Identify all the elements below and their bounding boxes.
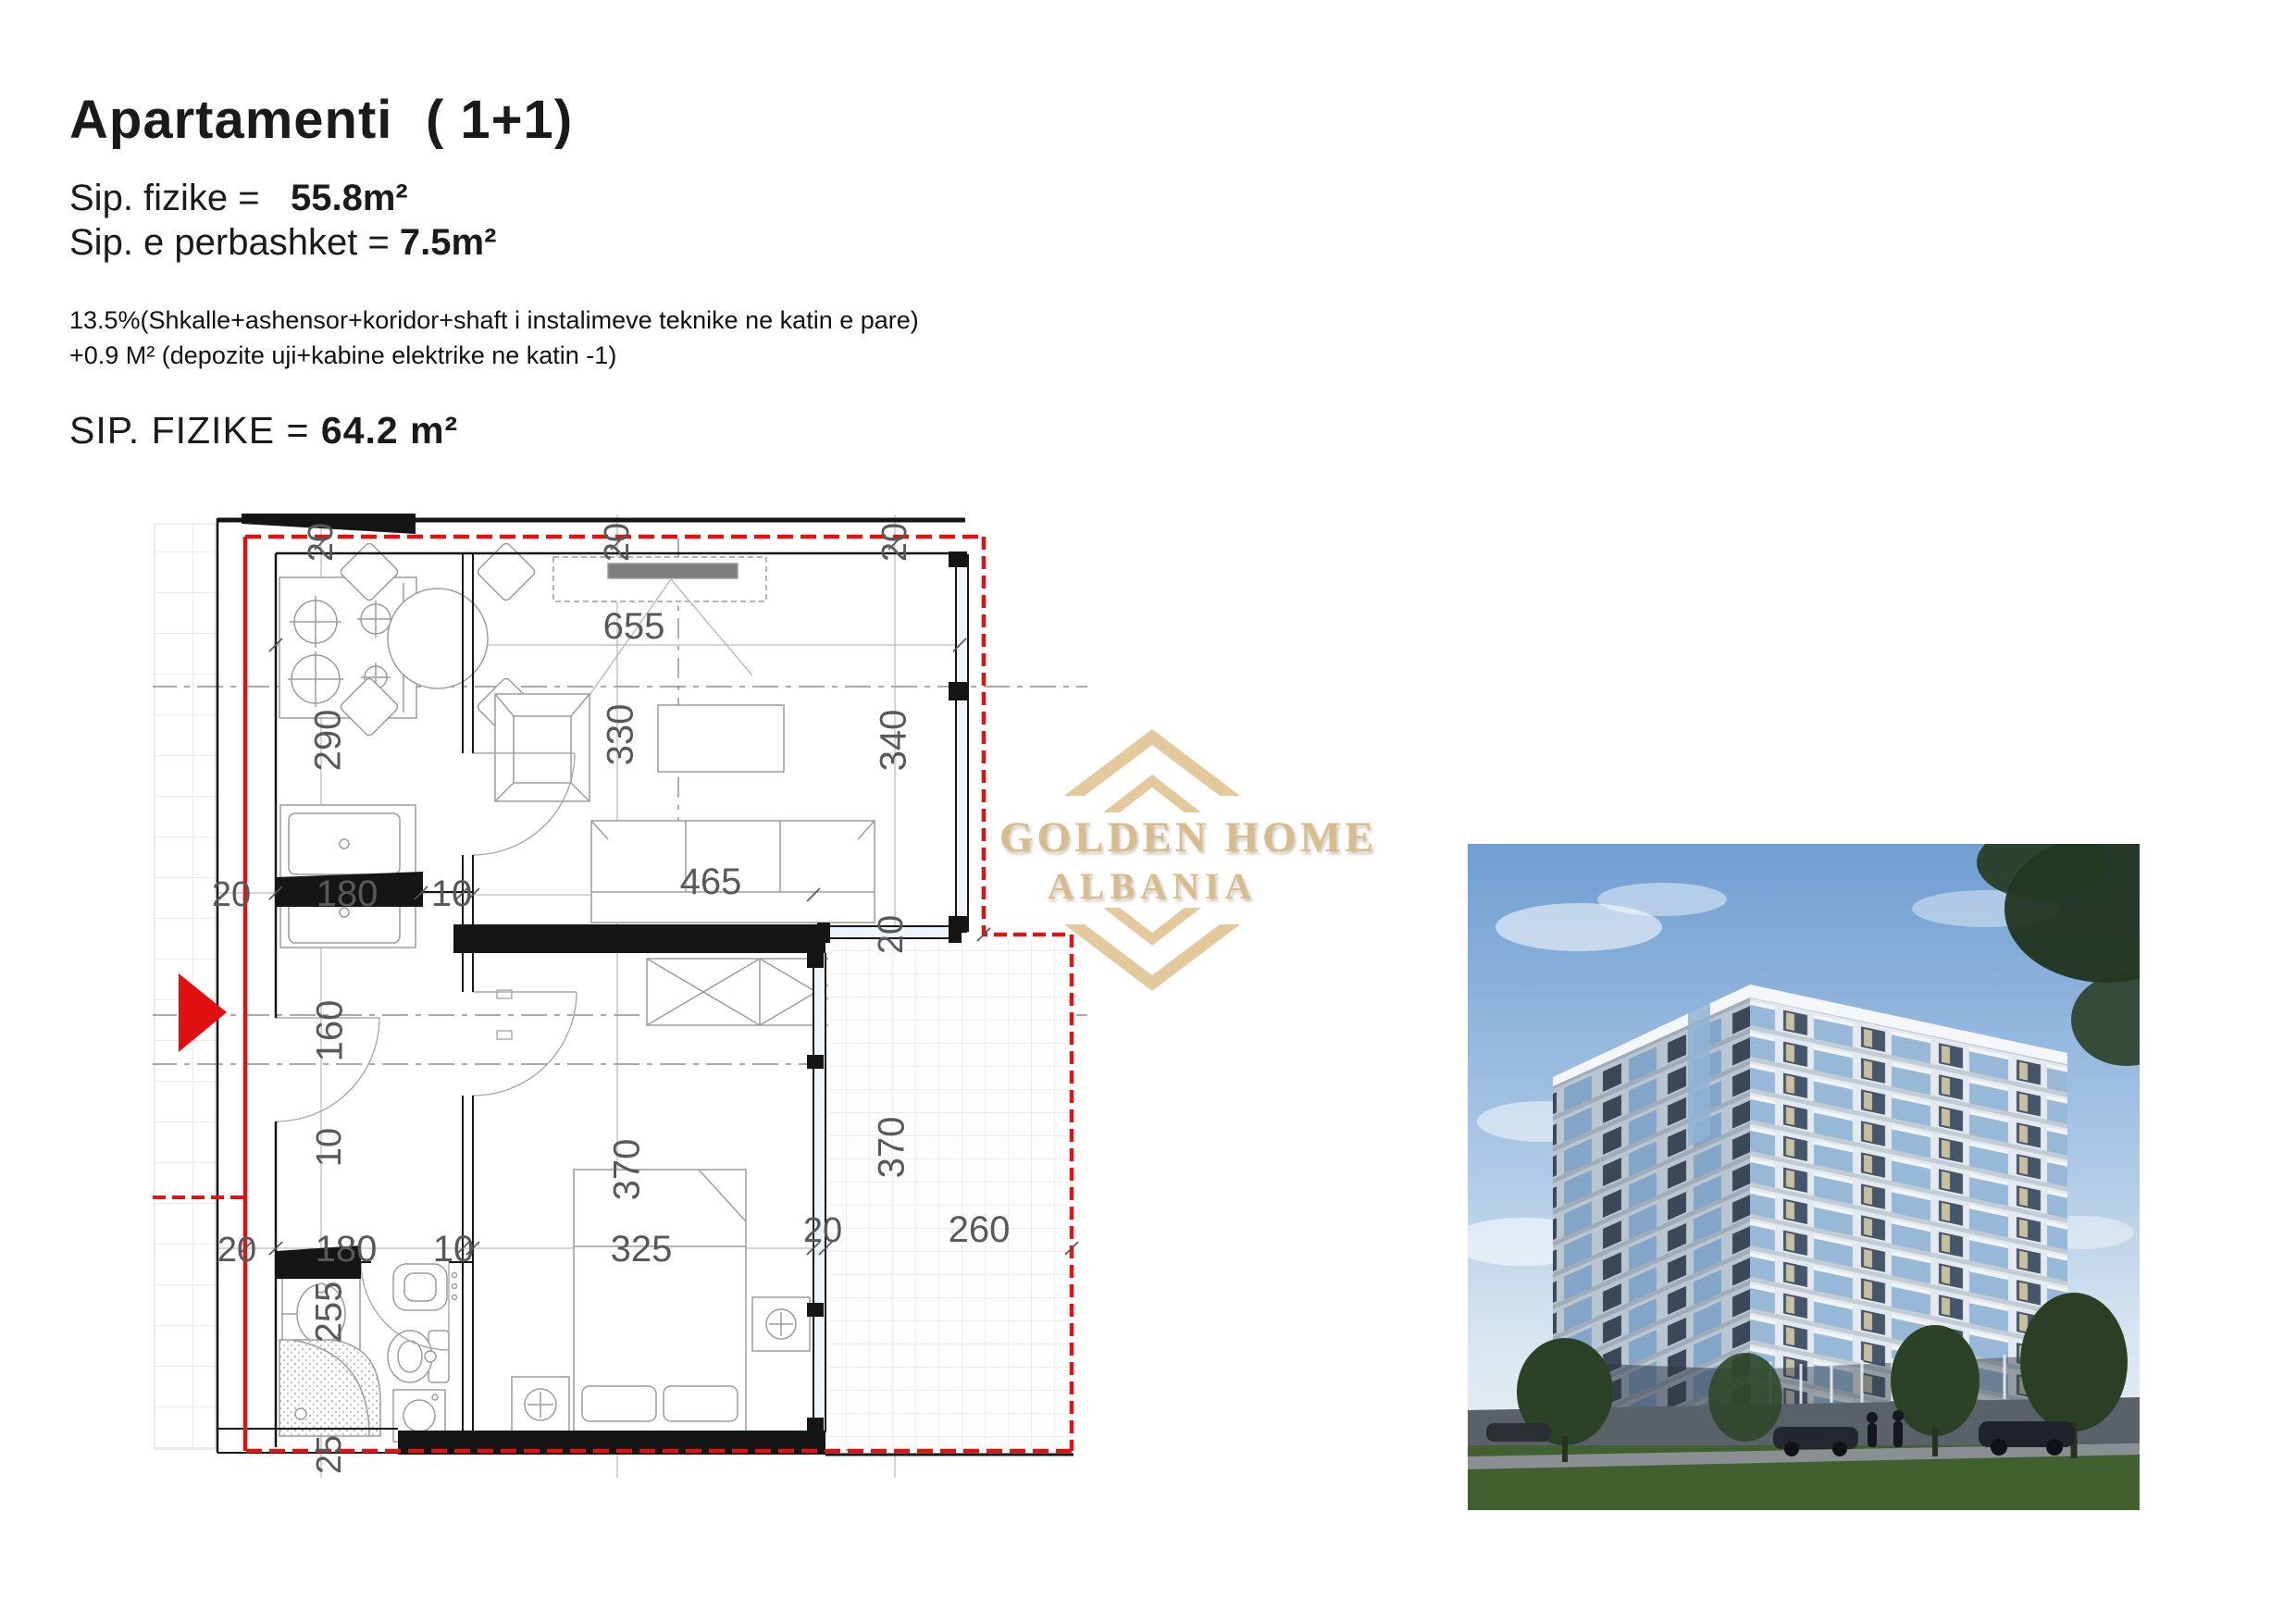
sip-perbashket-line: Sip. e perbashket = 7.5m² — [69, 222, 496, 264]
sip-fizike-line: Sip. fizike = 55.8m² — [69, 178, 408, 219]
dim-label: 20 — [598, 523, 637, 562]
door-frame-mark — [497, 1031, 512, 1039]
floor-plan-drawing: 20 20 20 655 290 330 340 20 180 10 465 2… — [153, 511, 1087, 1519]
apartment-type: ( 1+1) — [426, 89, 573, 151]
note-line-1: 13.5%(Shkalle+ashensor+koridor+shaft i i… — [69, 306, 919, 335]
coffee-table — [658, 705, 784, 772]
dim-label: 330 — [601, 704, 641, 766]
sip-perbashket-value: 7.5m² — [400, 222, 497, 263]
dim-label: 180 — [316, 873, 379, 914]
dim-label: 10 — [310, 1128, 349, 1167]
building — [1553, 985, 2067, 1418]
page-title-row: Apartamenti ( 1+1) — [69, 89, 392, 151]
toilet — [388, 1331, 449, 1382]
sip-total-label: SIP. FIZIKE = — [69, 409, 309, 452]
balcony-tiles — [828, 938, 1072, 1449]
dim-label: 20 — [803, 1211, 842, 1250]
building-render-illustration — [1468, 844, 2140, 1510]
dim-label: 10 — [433, 1229, 475, 1270]
dim-label: 25 — [310, 1435, 349, 1474]
dim-label: 20 — [212, 875, 251, 914]
dim-label: 260 — [949, 1209, 1011, 1250]
nightstand — [752, 1297, 810, 1351]
building-photo — [1468, 844, 2140, 1510]
sip-total-line: SIP. FIZIKE = 64.2 m² — [69, 409, 458, 452]
dim-label: 465 — [680, 861, 742, 902]
sip-total-value: 64.2 m² — [321, 409, 458, 452]
note-line-2: +0.9 M² (depozite uji+kabine elektrike n… — [69, 341, 616, 370]
bedroom-door — [473, 992, 577, 1096]
dim-label: 10 — [431, 873, 473, 914]
dim-label: 20 — [217, 1231, 256, 1270]
bidet — [393, 1264, 457, 1310]
dim-label: 180 — [316, 1229, 378, 1270]
sip-fizike-label: Sip. fizike = — [69, 178, 260, 218]
dim-label: 370 — [607, 1139, 648, 1201]
floor-plan: 20 20 20 655 290 330 340 20 180 10 465 2… — [153, 511, 1087, 1519]
dim-label: 160 — [310, 1000, 351, 1062]
nightstand — [512, 1377, 569, 1432]
shower — [279, 1340, 380, 1436]
dim-label: 20 — [875, 523, 914, 562]
bed — [574, 1170, 746, 1432]
dim-label: 655 — [603, 606, 665, 647]
dim-label: 325 — [611, 1229, 673, 1270]
page-title: Apartamenti — [69, 90, 392, 150]
dim-label: 255 — [309, 1282, 350, 1344]
sip-fizike-value: 55.8m² — [291, 178, 408, 218]
dim-label: 20 — [302, 523, 341, 562]
apartment-plan-page: Apartamenti ( 1+1) Sip. fizike = 55.8m² … — [0, 0, 2296, 1623]
dim-label: 290 — [308, 710, 349, 772]
furniture — [279, 541, 875, 1442]
dim-label: 340 — [874, 710, 914, 772]
armchair — [495, 694, 590, 801]
sip-perbashket-label: Sip. e perbashket = — [69, 222, 390, 263]
dim-label: 20 — [872, 915, 911, 954]
dim-label: 370 — [872, 1117, 912, 1179]
